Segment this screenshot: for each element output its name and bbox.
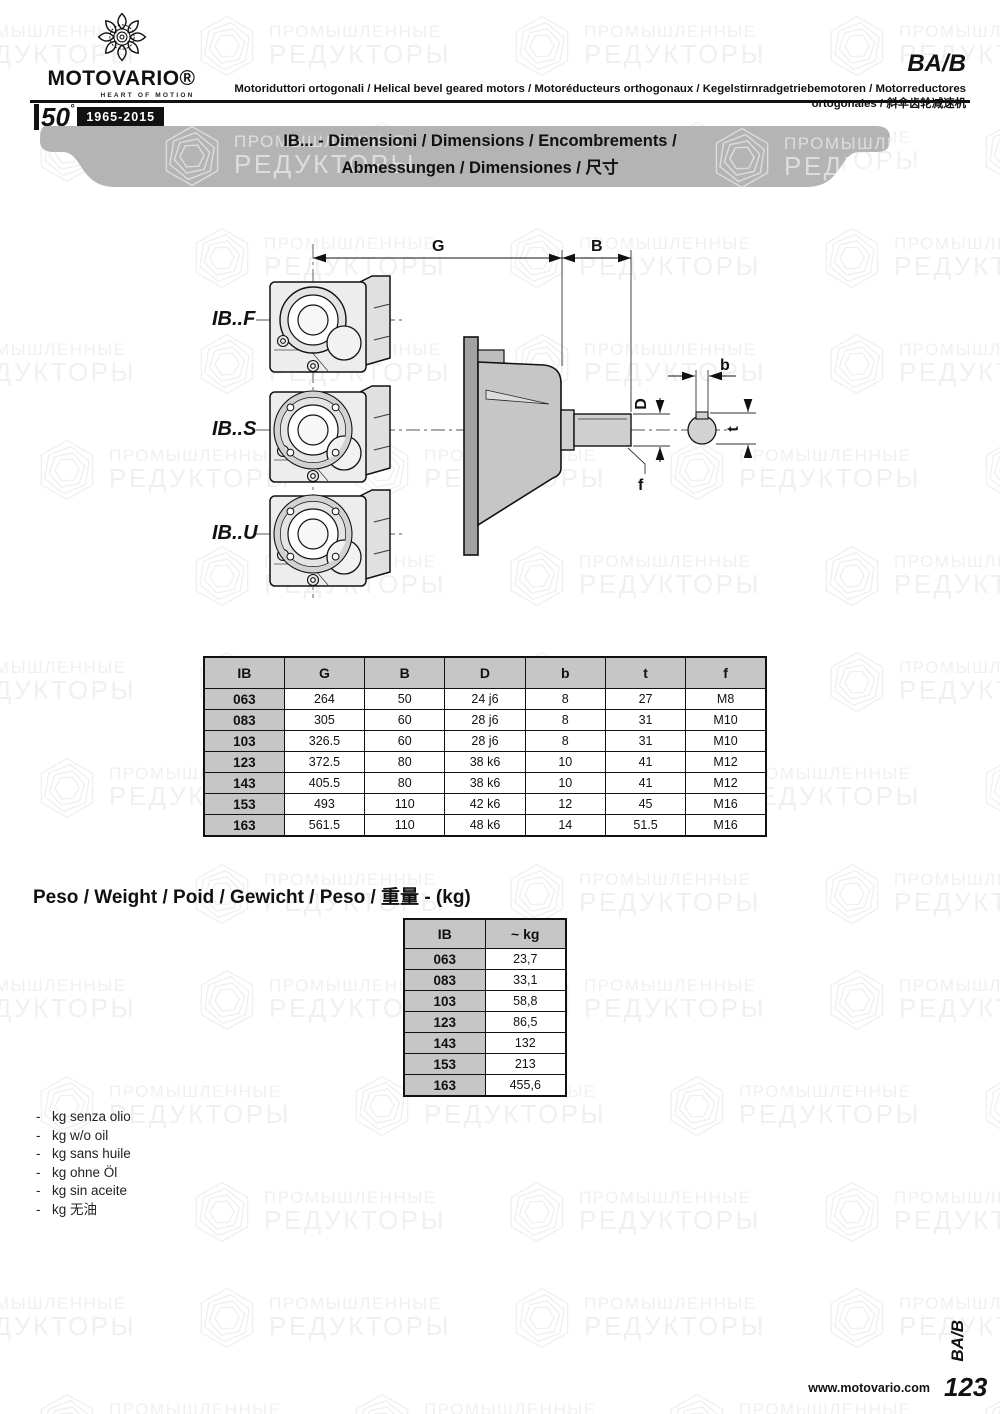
value-cell: 27 [605,689,685,710]
hexagon-spiral-icon [825,14,889,78]
watermark: ПРОМЫШЛЕННЫЕ РЕДУКТОРЫ [190,1180,446,1244]
row-key-cell: 123 [404,1012,485,1033]
value-cell: 28 j6 [445,710,525,731]
note-item: kg sin aceite [36,1182,131,1201]
hexagon-spiral-icon [190,1180,254,1244]
value-cell: 132 [485,1033,566,1054]
table-row: 12386,5 [404,1012,566,1033]
watermark-line2: РЕДУКТОРЫ [899,995,1000,1022]
table-row: 153213 [404,1054,566,1075]
watermark: ПРОМЫШЛЕННЫЕ РЕДУКТОРЫ [820,862,1000,926]
watermark: ПРОМЫШЛЕННЫЕ РЕДУКТОРЫ [980,1074,1000,1138]
watermark: ПРОМЫШЛЕННЫЕ РЕДУКТОРЫ [820,1180,1000,1244]
watermark: ПРОМЫШЛЕННЫЕ РЕДУКТОРЫ [825,968,1000,1032]
watermark-line2: РЕДУКТОРЫ [894,571,1000,598]
watermark-line2: РЕДУКТОРЫ [424,1101,606,1128]
hexagon-spiral-icon [665,1392,729,1414]
watermark: ПРОМЫШЛЕННЫЕ РЕДУКТОРЫ [505,862,761,926]
watermark: ПРОМЫШЛЕННЫЕ РЕДУКТОРЫ [505,1180,761,1244]
value-cell: 31 [605,731,685,752]
variant-label-ibf: IB..F [212,308,255,331]
table-row: 15349311042 k61245M16 [204,794,766,815]
weight-section-title: Peso / Weight / Poid / Gewicht / Peso / … [33,882,471,909]
value-cell: 41 [605,752,685,773]
value-cell: 58,8 [485,991,566,1012]
value-cell: 50 [365,689,445,710]
watermark-line2: РЕДУКТОРЫ [0,677,136,704]
watermark-line2: РЕДУКТОРЫ [584,995,766,1022]
value-cell: M16 [686,815,766,837]
hexagon-spiral-icon [980,756,1000,820]
catalog-page: ПРОМЫШЛЕННЫЕ РЕДУКТОРЫ ПРОМЫШЛЕННЫЕ РЕДУ… [0,0,1000,1414]
website-link[interactable]: www.motovario.com [760,1381,930,1395]
section-banner: ПРОМЫШЛЕННЫЕ РЕДУКТОРЫ ПРОМЫШЛЕННЫЕ РЕДУ… [30,124,900,190]
variant-label-ibs: IB..S [212,418,256,441]
watermark-line1: ПРОМЫШЛЕННЫЕ [424,1401,606,1414]
row-key-cell: 143 [404,1033,485,1054]
value-cell: 455,6 [485,1075,566,1097]
variant-label-ibu: IB..U [212,522,258,545]
watermark: ПРОМЫШЛЕННЫЕ РЕДУКТОРЫ [0,968,136,1032]
value-cell: M16 [686,794,766,815]
note-item: kg 无油 [36,1201,131,1220]
watermark-line2: РЕДУКТОРЫ [264,1207,446,1234]
hexagon-spiral-icon [825,1286,889,1350]
value-cell: 405.5 [284,773,364,794]
value-cell: 8 [525,710,605,731]
table-row: 08333,1 [404,970,566,991]
watermark-line2: РЕДУКТОРЫ [109,1101,291,1128]
value-cell: M12 [686,773,766,794]
hexagon-spiral-icon [505,1180,569,1244]
row-key-cell: 163 [204,815,284,837]
watermark: ПРОМЫШЛЕННЫЕ РЕДУКТОРЫ [820,544,1000,608]
watermark: ПРОМЫШЛЕННЫЕ РЕДУКТОРЫ [825,1286,1000,1350]
value-cell: 326.5 [284,731,364,752]
hexagon-spiral-icon [510,14,574,78]
value-cell: 80 [365,752,445,773]
value-cell: 14 [525,815,605,837]
value-cell: 51.5 [605,815,685,837]
watermark: ПРОМЫШЛЕННЫЕ РЕДУКТОРЫ [665,1074,921,1138]
table-row: 163561.511048 k61451.5M16 [204,815,766,837]
value-cell: M10 [686,710,766,731]
brand-name: MOTOVARIO® [34,67,209,91]
dimensions-table-header: IBGBDbtf [204,657,766,689]
hexagon-spiral-icon [825,650,889,714]
row-key-cell: 063 [404,949,485,970]
value-cell: 86,5 [485,1012,566,1033]
watermark-line2: РЕДУКТОРЫ [0,995,136,1022]
value-cell: 80 [365,773,445,794]
value-cell: 33,1 [485,970,566,991]
value-cell: 31 [605,710,685,731]
watermark: ПРОМЫШЛЕННЫЕ РЕДУКТОРЫ [825,332,1000,396]
hexagon-spiral-icon [505,862,569,926]
watermark: ПРОМЫШЛЕННЫЕ РЕДУКТОРЫ [665,1392,921,1414]
page-subtitle: Motoriduttori ortogonali / Helical bevel… [200,83,966,111]
value-cell: 38 k6 [445,752,525,773]
note-item: kg senza olio [36,1108,131,1127]
weight-table-header: IB~ kg [404,919,566,949]
dim-label-b: b [720,357,730,374]
row-key-cell: 143 [204,773,284,794]
gearbox-front-view-s [270,386,390,482]
value-cell: 305 [284,710,364,731]
value-cell: 60 [365,710,445,731]
hexagon-spiral-icon [820,226,884,290]
banner-title-line2: Abmessungen / Dimensiones / 尺寸 [150,154,810,178]
hexagon-spiral-icon [825,968,889,1032]
table-row: 10358,8 [404,991,566,1012]
dim-label-B: B [591,238,603,255]
header-rule [30,100,970,103]
watermark: ПРОМЫШЛЕННЫЕ РЕДУКТОРЫ [35,1392,291,1414]
column-header: D [445,657,525,689]
value-cell: 213 [485,1054,566,1075]
value-cell: 12 [525,794,605,815]
watermark: ПРОМЫШЛЕННЫЕ РЕДУКТОРЫ [820,226,1000,290]
dimension-drawing: G B D f [180,238,780,600]
hexagon-spiral-icon [35,1392,99,1414]
column-header: ~ kg [485,919,566,949]
brand-tagline: HEART OF MOTION [86,92,209,99]
value-cell: 110 [365,794,445,815]
column-header: IB [404,919,485,949]
table-row: 163455,6 [404,1075,566,1097]
row-key-cell: 083 [204,710,284,731]
hexagon-spiral-icon [35,438,99,502]
hexagon-spiral-icon [820,862,884,926]
dim-f: f [628,448,645,494]
note-item: kg sans huile [36,1145,131,1164]
table-row: 06323,7 [404,949,566,970]
hexagon-spiral-icon [980,438,1000,502]
watermark-line2: РЕДУКТОРЫ [269,1313,451,1340]
series-code-tab: BA/B [948,1320,968,1362]
value-cell: 10 [525,752,605,773]
value-cell: M8 [686,689,766,710]
watermark-line2: РЕДУКТОРЫ [894,253,1000,280]
table-row: 143132 [404,1033,566,1054]
watermark-line2: РЕДУКТОРЫ [579,1207,761,1234]
hexagon-spiral-icon [980,120,1000,184]
column-header: G [284,657,364,689]
dim-label-G: G [432,238,444,255]
gearbox-front-view-u [270,490,553,600]
hexagon-spiral-icon [35,756,99,820]
page-number: 123 [944,1372,987,1403]
watermark: ПРОМЫШЛЕННЫЕ РЕДУКТОРЫ [980,756,1000,820]
hexagon-spiral-icon [825,332,889,396]
value-cell: 45 [605,794,685,815]
hexagon-spiral-icon [195,1286,259,1350]
value-cell: 493 [284,794,364,815]
watermark-line2: РЕДУКТОРЫ [584,1313,766,1340]
value-cell: 38 k6 [445,773,525,794]
value-cell: 28 j6 [445,731,525,752]
watermark-line2: РЕДУКТОРЫ [269,41,451,68]
hexagon-spiral-icon [980,1074,1000,1138]
table-row: 0833056028 j6831M10 [204,710,766,731]
column-header: t [605,657,685,689]
row-key-cell: 153 [204,794,284,815]
table-row: 143405.58038 k61041M12 [204,773,766,794]
row-key-cell: 103 [404,991,485,1012]
table-row: 123372.58038 k61041M12 [204,752,766,773]
value-cell: 8 [525,689,605,710]
hexagon-spiral-icon [820,1180,884,1244]
rosette-logo-icon [95,10,149,64]
value-cell: 10 [525,773,605,794]
table-row: 103326.56028 j6831M10 [204,731,766,752]
watermark: ПРОМЫШЛЕННЫЕ РЕДУКТОРЫ [0,332,136,396]
row-key-cell: 153 [404,1054,485,1075]
row-key-cell: 123 [204,752,284,773]
watermark: ПРОМЫШЛЕННЫЕ РЕДУКТОРЫ [0,1286,136,1350]
shaft-cross-section: b t [668,357,756,458]
note-item: kg w/o oil [36,1127,131,1146]
hexagon-spiral-icon [820,544,884,608]
row-key-cell: 103 [204,731,284,752]
watermark-line2: РЕДУКТОРЫ [0,1313,136,1340]
watermark: ПРОМЫШЛЕННЫЕ РЕДУКТОРЫ [0,650,136,714]
value-cell: 41 [605,773,685,794]
table-row: 0632645024 j6827M8 [204,689,766,710]
value-cell: 264 [284,689,364,710]
watermark: ПРОМЫШЛЕННЫЕ РЕДУКТОРЫ [510,1286,766,1350]
weight-table: IB~ kg 06323,708333,110358,812386,514313… [403,918,567,1097]
column-header: IB [204,657,284,689]
watermark: ПРОМЫШЛЕННЫЕ РЕДУКТОРЫ [980,120,1000,184]
value-cell: 110 [365,815,445,837]
watermark-line2: РЕДУКТОРЫ [739,1101,921,1128]
hexagon-spiral-icon [665,1074,729,1138]
watermark: ПРОМЫШЛЕННЫЕ РЕДУКТОРЫ [980,438,1000,502]
note-item: kg ohne Öl [36,1164,131,1183]
value-cell: 60 [365,731,445,752]
row-key-cell: 163 [404,1075,485,1097]
watermark-line2: РЕДУКТОРЫ [0,359,136,386]
row-key-cell: 063 [204,689,284,710]
value-cell: 42 k6 [445,794,525,815]
watermark-line2: РЕДУКТОРЫ [584,41,766,68]
watermark: ПРОМЫШЛЕННЫЕ РЕДУКТОРЫ [510,14,766,78]
column-header: b [525,657,605,689]
hexagon-spiral-icon [510,1286,574,1350]
column-header: B [365,657,445,689]
watermark-line2: РЕДУКТОРЫ [899,677,1000,704]
watermark-line2: РЕДУКТОРЫ [894,889,1000,916]
watermark-line2: РЕДУКТОРЫ [579,889,761,916]
watermark: ПРОМЫШЛЕННЫЕ РЕДУКТОРЫ [825,650,1000,714]
watermark: ПРОМЫШЛЕННЫЕ РЕДУКТОРЫ [350,1392,606,1414]
dim-label-D: D [633,398,650,410]
banner-title-line1: IB... - Dimensioni / Dimensions / Encomb… [150,132,810,151]
dimensions-table: IBGBDbtf 0632645024 j6827M80833056028 j6… [203,656,767,837]
row-key-cell: 083 [404,970,485,991]
watermark: ПРОМЫШЛЕННЫЕ РЕДУКТОРЫ [195,1286,451,1350]
watermark-line2: РЕДУКТОРЫ [894,1207,1000,1234]
gearbox-front-view-f [270,276,390,372]
value-cell: 23,7 [485,949,566,970]
gearbox-side-view [464,337,631,555]
value-cell: 48 k6 [445,815,525,837]
series-code-header: BA/B [907,50,966,78]
hexagon-spiral-icon [350,1392,414,1414]
weight-notes: kg senza oliokg w/o oilkg sans huilekg o… [36,1108,131,1219]
watermark-line2: РЕДУКТОРЫ [899,359,1000,386]
value-cell: M10 [686,731,766,752]
watermark-line1: ПРОМЫШЛЕННЫЕ [739,1401,921,1414]
value-cell: 8 [525,731,605,752]
dim-label-t: t [725,426,742,432]
value-cell: M12 [686,752,766,773]
value-cell: 372.5 [284,752,364,773]
hexagon-spiral-icon [195,968,259,1032]
value-cell: 561.5 [284,815,364,837]
motovario-logo: MOTOVARIO® HEART OF MOTION 50° 1965-2015 [34,10,209,130]
column-header: f [686,657,766,689]
dim-label-f: f [638,477,644,494]
watermark: ПРОМЫШЛЕННЫЕ РЕДУКТОРЫ [195,14,451,78]
watermark-line1: ПРОМЫШЛЕННЫЕ [109,1401,291,1414]
watermark-line2: РЕДУКТОРЫ [784,153,966,180]
value-cell: 24 j6 [445,689,525,710]
